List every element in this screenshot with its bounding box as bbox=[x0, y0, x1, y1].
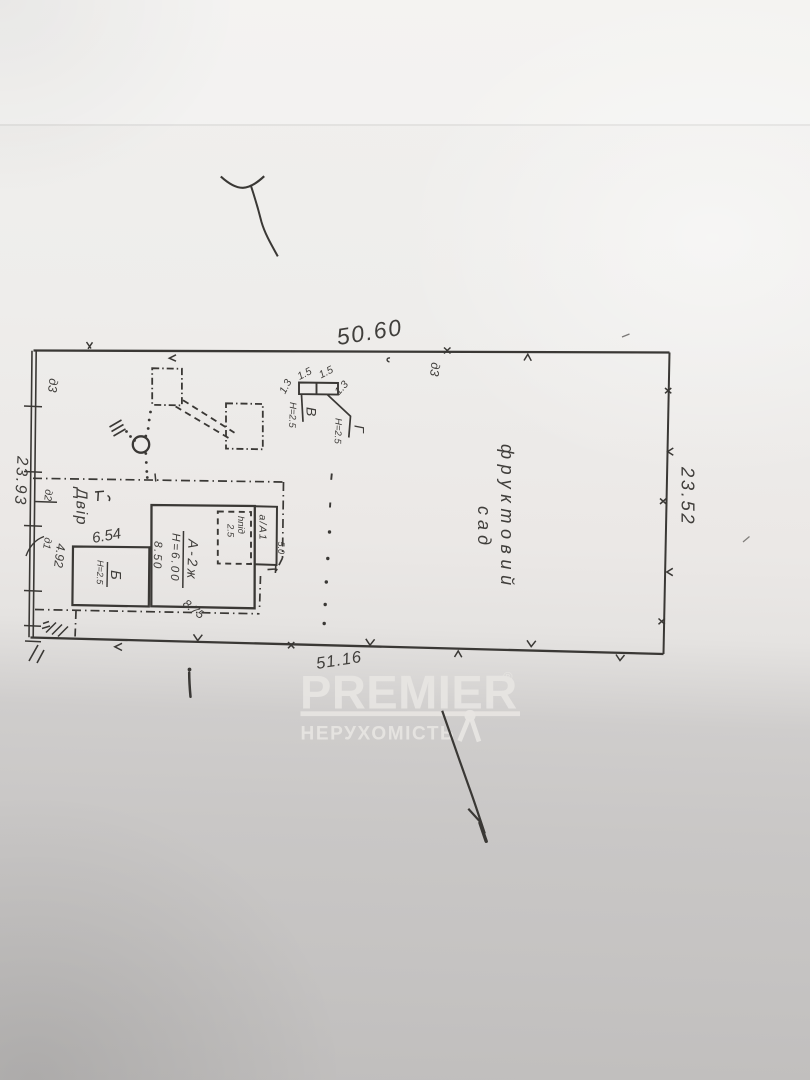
svg-text:Г: Г bbox=[352, 425, 368, 434]
svg-text:НЕРУХОМІСТЬ: НЕРУХОМІСТЬ bbox=[301, 724, 456, 745]
svg-text:а/А1: а/А1 bbox=[257, 515, 269, 541]
svg-text:фруктовий: фруктовий bbox=[497, 444, 517, 591]
svg-text:д3: д3 bbox=[45, 378, 60, 393]
svg-text:8.75: 8.75 bbox=[180, 596, 207, 622]
svg-text:д1: д1 bbox=[40, 536, 54, 550]
svg-text:Двір: Двір bbox=[73, 486, 90, 526]
svg-text:1.5: 1.5 bbox=[295, 365, 314, 382]
svg-text:23.93: 23.93 bbox=[11, 455, 31, 507]
svg-text:1.3: 1.3 bbox=[277, 377, 295, 396]
svg-text:8.50: 8.50 bbox=[150, 541, 163, 570]
svg-text:Н=2.5: Н=2.5 bbox=[286, 402, 298, 429]
svg-text:50.60: 50.60 bbox=[335, 314, 405, 350]
svg-text:®: ® bbox=[503, 669, 513, 684]
svg-text:PREMIER: PREMIER bbox=[300, 666, 518, 719]
svg-text:Н=2.5: Н=2.5 bbox=[332, 418, 344, 445]
svg-text:В: В bbox=[304, 407, 320, 416]
svg-text:А-2ж: А-2ж bbox=[184, 538, 201, 581]
svg-text:д3: д3 bbox=[427, 362, 442, 377]
svg-text:6.54: 6.54 bbox=[91, 525, 123, 547]
svg-text:Н=6.00: Н=6.00 bbox=[168, 533, 182, 583]
svg-text:д2: д2 bbox=[41, 489, 54, 502]
svg-text:Н=2.5: Н=2.5 bbox=[95, 560, 106, 586]
svg-text:2.5: 2.5 bbox=[225, 523, 236, 538]
svg-text:23.52: 23.52 bbox=[678, 466, 699, 526]
svg-text:4.92: 4.92 bbox=[51, 543, 68, 569]
svg-text:Б: Б bbox=[107, 570, 124, 580]
svg-text:сад: сад bbox=[474, 506, 494, 550]
svg-text:hпід: hпід bbox=[235, 516, 246, 534]
svg-text:1.5: 1.5 bbox=[317, 364, 336, 381]
svg-text:5.0: 5.0 bbox=[276, 542, 286, 555]
